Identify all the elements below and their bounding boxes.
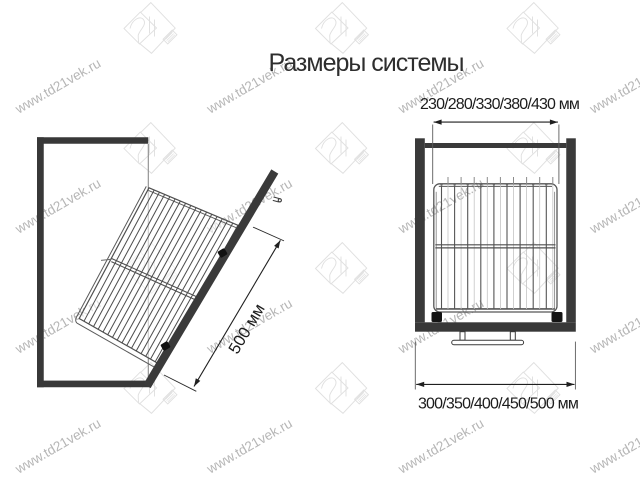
svg-text:300/350/400/450/500 мм: 300/350/400/450/500 мм (418, 396, 578, 413)
svg-text:Размеры системы: Размеры системы (268, 49, 463, 77)
svg-text:230/280/330/380/430 мм: 230/280/330/380/430 мм (420, 96, 579, 113)
